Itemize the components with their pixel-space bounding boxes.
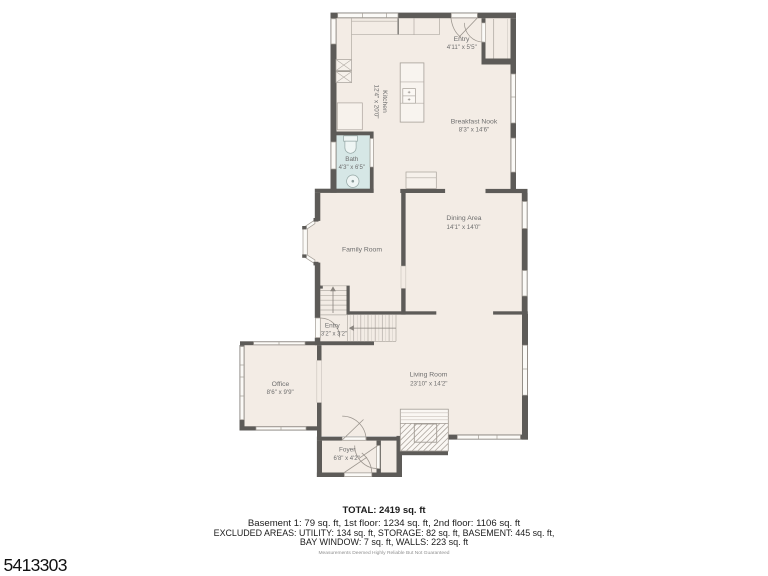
- svg-text:Living Room: Living Room: [410, 372, 448, 379]
- svg-text:Entry: Entry: [325, 322, 341, 329]
- svg-text:4'3" x 6'5": 4'3" x 6'5": [339, 165, 365, 171]
- svg-text:Dining Area: Dining Area: [446, 215, 481, 222]
- svg-text:6'8" x 4'2": 6'8" x 4'2": [333, 456, 359, 462]
- svg-text:14'1" x 14'0": 14'1" x 14'0": [447, 224, 481, 231]
- svg-text:8'6" x 9'9": 8'6" x 9'9": [267, 389, 294, 396]
- svg-text:Kitchen: Kitchen: [381, 90, 388, 113]
- svg-text:Breakfast Nook: Breakfast Nook: [451, 119, 498, 126]
- svg-text:12'4" x 20'0": 12'4" x 20'0": [373, 85, 380, 119]
- svg-text:Bath: Bath: [345, 156, 359, 163]
- svg-text:23'10" x 14'2": 23'10" x 14'2": [410, 381, 447, 388]
- svg-text:3'2" x 3'2": 3'2" x 3'2": [321, 331, 347, 337]
- svg-text:4'11" x 5'5": 4'11" x 5'5": [447, 44, 477, 51]
- svg-text:8'3" x 14'6": 8'3" x 14'6": [459, 127, 490, 134]
- svg-text:Office: Office: [272, 381, 290, 388]
- svg-text:Entry: Entry: [454, 36, 470, 43]
- svg-text:Foyer: Foyer: [339, 447, 356, 454]
- svg-text:Family Room: Family Room: [342, 247, 382, 254]
